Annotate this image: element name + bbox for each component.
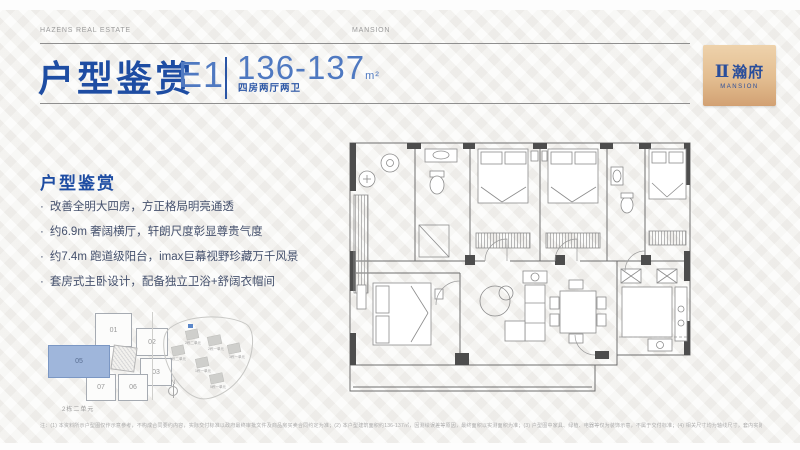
bedroom-3 (542, 149, 600, 248)
wardrobe-icon (546, 233, 600, 248)
layout-desc: 四房两厅两卫 (238, 80, 301, 94)
bathroom-2 (611, 167, 633, 213)
brand-left: HAZENS REAL ESTATE (40, 27, 131, 34)
feature-item: ·改善全明大四房，方正格局明亮通透 (40, 195, 340, 220)
living-room (480, 271, 547, 341)
unit-label: 06 (129, 384, 137, 391)
unit-label: 07 (97, 384, 105, 391)
feature-item: ·约7.4m 跑道级阳台，imax巨幕视野珍藏万千风景 (40, 245, 340, 270)
bedroom-2 (476, 149, 538, 248)
unit-06: 07 (86, 374, 116, 401)
rug-icon (480, 286, 510, 316)
header-rule (40, 43, 690, 44)
project-logo: Ⅱ 瀚府 MANSION (703, 45, 776, 106)
logo-symbol-icon: Ⅱ (715, 62, 729, 82)
bathroom-1 (419, 149, 457, 257)
kitchen-sink-icon (648, 339, 672, 351)
plan-divider (152, 312, 153, 400)
feature-item: ·套房式主卧设计，配备独立卫浴+舒阔衣帽间 (40, 270, 340, 295)
compass-icon (168, 386, 178, 396)
counter-icon (622, 287, 672, 337)
toilet-icon (621, 197, 633, 213)
bullet-icon: · (40, 245, 44, 270)
bottom-margin (0, 443, 800, 450)
disclaimer-text: 注：(1) 本资料所示户型图仅作示意参考，不构成合同要约内容，实际交付标准以政府… (40, 422, 762, 429)
floorplan-drawing (345, 133, 695, 400)
features-heading: 户型鉴赏 (40, 169, 116, 194)
unit-label: 05 (75, 358, 83, 365)
closet-icon (354, 195, 368, 293)
chair-icon (597, 314, 606, 326)
bullet-icon: · (40, 220, 44, 245)
floor-key-plan: 01 02 03 06 07 05 (40, 308, 175, 403)
building-label: 2栋二单元 (185, 341, 201, 346)
feature-text: 约6.9m 奢阔横厅，轩朗尺度彰显尊贵气度 (50, 220, 263, 245)
north-arrow: N (166, 380, 180, 396)
building-label: 2栋一单元 (208, 347, 224, 352)
building-label: 3栋一单元 (229, 355, 245, 360)
brand-center: MANSION (352, 27, 390, 34)
feature-text: 改善全明大四房，方正格局明亮通透 (50, 195, 234, 220)
dining-table-icon (560, 291, 596, 333)
toilet-icon (430, 176, 444, 194)
washer-icon (381, 154, 399, 172)
unit-label: 01 (110, 327, 118, 334)
title-rule (40, 103, 690, 104)
bullet-icon: · (40, 195, 44, 220)
chair-icon (569, 280, 583, 289)
key-plan-caption: 2栋二单元 (62, 404, 94, 413)
building-label: 5栋一单元 (210, 385, 226, 390)
feature-text: 套房式主卧设计，配备独立卫浴+舒阔衣帽间 (50, 270, 275, 295)
feature-text: 约7.4m 跑道级阳台，imax巨幕视野珍藏万千风景 (50, 245, 299, 270)
features-list: ·改善全明大四房，方正格局明亮通透 ·约6.9m 奢阔横厅，轩朗尺度彰显尊贵气度… (40, 195, 340, 295)
unit-07-highlighted: 05 (48, 345, 110, 378)
building-label: 1栋二单元 (170, 357, 186, 362)
top-margin (0, 0, 800, 10)
site-plan: 2栋二单元 2栋一单元 3栋一单元 1栋二单元 1栋一单元 5栋一单元 N (158, 310, 258, 406)
kitchen (619, 269, 689, 351)
unit-05: 06 (118, 374, 148, 401)
logo-row: Ⅱ 瀚府 (715, 61, 764, 82)
title-divider (225, 57, 227, 99)
wardrobe-icon (649, 231, 686, 245)
bullet-icon: · (40, 270, 44, 295)
highlight-marker (188, 324, 193, 328)
feature-item: ·约6.9m 奢阔横厅，轩朗尺度彰显尊贵气度 (40, 220, 340, 245)
logo-name-cn: 瀚府 (732, 61, 764, 82)
utility-room (354, 154, 399, 293)
bedroom-4 (649, 149, 686, 245)
building-label: 1栋一单元 (195, 369, 211, 374)
sofa-icon (525, 285, 545, 341)
floorplan (345, 133, 695, 400)
page-title: 户型鉴赏 (38, 50, 194, 102)
logo-name-en: MANSION (720, 84, 759, 90)
core-shaft (110, 344, 137, 372)
area-unit: m² (365, 70, 380, 82)
chair-icon (550, 314, 559, 326)
unit-code: E1 (178, 54, 224, 96)
wardrobe-icon (476, 233, 530, 248)
unit-01: 01 (95, 313, 132, 347)
master-bedroom (357, 283, 443, 345)
chair-icon (597, 297, 606, 309)
dining-area (550, 280, 606, 343)
chair-icon (550, 297, 559, 309)
